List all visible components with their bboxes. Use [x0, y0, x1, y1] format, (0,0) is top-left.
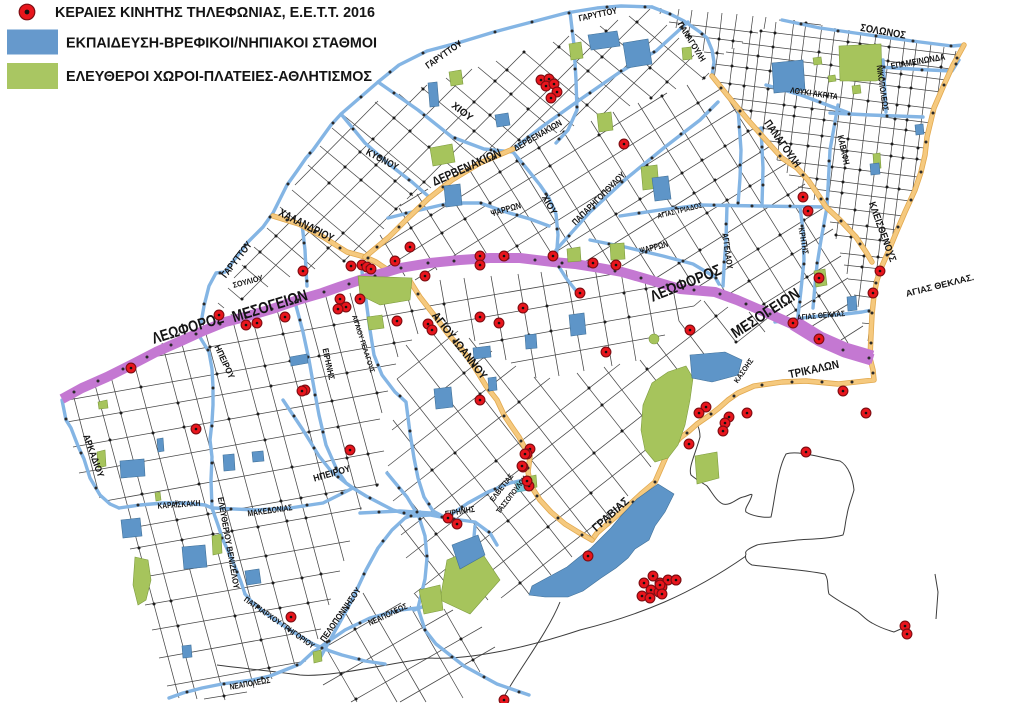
svg-text:ΚΕΡΑΙΕΣ ΚΙΝΗΤΗΣ ΤΗΛΕΦΩΝΙΑΣ, Ε.: ΚΕΡΑΙΕΣ ΚΙΝΗΤΗΣ ΤΗΛΕΦΩΝΙΑΣ, Ε.Ε.Τ.Τ. 201… [55, 4, 375, 21]
svg-text:ΕΛΕΥΘΕΡΟΙ ΧΩΡΟΙ-ΠΛΑΤΕΙΕΣ-ΑΘΛΗΤ: ΕΛΕΥΘΕΡΟΙ ΧΩΡΟΙ-ΠΛΑΤΕΙΕΣ-ΑΘΛΗΤΙΣΜΟΣ [66, 68, 372, 85]
svg-text:ΕΚΠΑΙΔΕΥΣΗ-ΒΡΕΦΙΚΟΙ/ΝΗΠΙΑΚΟΙ Σ: ΕΚΠΑΙΔΕΥΣΗ-ΒΡΕΦΙΚΟΙ/ΝΗΠΙΑΚΟΙ ΣΤΑΘΜΟΙ [66, 35, 377, 52]
